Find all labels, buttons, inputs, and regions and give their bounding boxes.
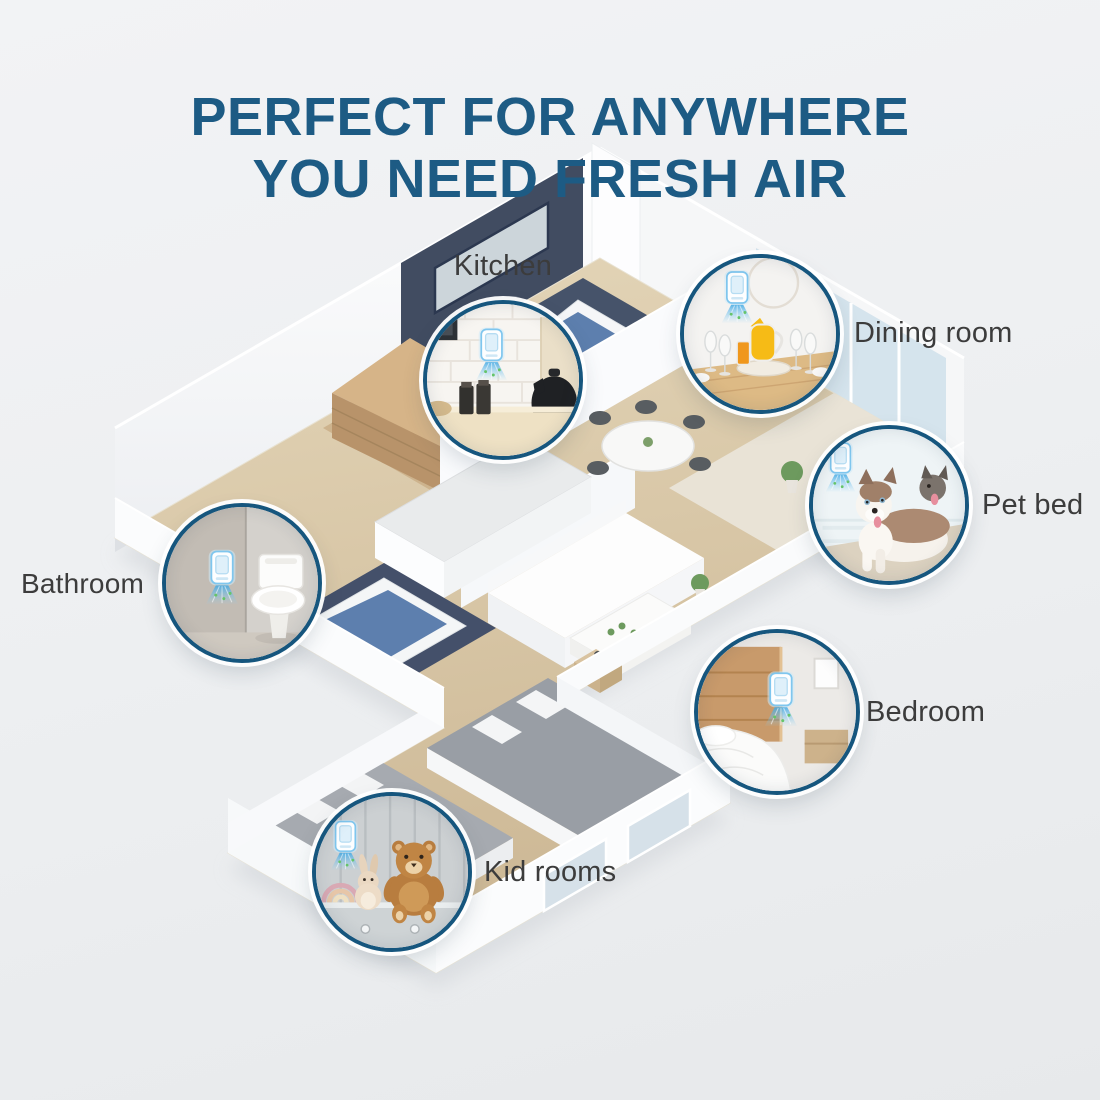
stage: PERFECT FOR ANYWHERE YOU NEED FRESH AIR [0, 0, 1100, 1100]
pet-bed-label: Pet bed [982, 489, 1083, 522]
air-purifier-device [722, 270, 753, 323]
bathroom-scene [166, 507, 318, 659]
bedroom-photo-circle [694, 629, 860, 795]
air-purifier-device [331, 820, 361, 870]
knob [361, 925, 370, 934]
page-title: PERFECT FOR ANYWHERE YOU NEED FRESH AIR [0, 86, 1100, 210]
jar [476, 384, 490, 414]
kid-rooms-photo-circle [312, 792, 472, 952]
dining-room-scene [684, 258, 836, 410]
knob [411, 925, 420, 934]
air-purifier-device [206, 550, 238, 604]
pet-bed-scene [813, 429, 965, 581]
jar [459, 386, 473, 415]
juice-glass [737, 342, 749, 365]
title-line-1: PERFECT FOR ANYWHERE [0, 86, 1100, 148]
picture-frame [815, 659, 839, 689]
dining-room-label: Dining room [854, 317, 1013, 350]
pet-bed-photo-circle [809, 425, 969, 585]
cup [812, 367, 829, 377]
bathroom-photo-circle [162, 503, 322, 663]
kitchen-label: Kitchen [403, 250, 603, 283]
bathroom-label: Bathroom [12, 568, 144, 600]
bedroom-scene [698, 633, 856, 791]
pillow [698, 726, 736, 746]
kitchen-photo-circle [423, 300, 583, 460]
air-purifier-device [765, 671, 797, 726]
dining-room-photo-circle [680, 254, 840, 414]
air-purifier-device [826, 442, 856, 492]
air-purifier-device [476, 328, 507, 381]
nightstand [805, 730, 848, 764]
kid-rooms-scene [316, 796, 468, 948]
title-line-2: YOU NEED FRESH AIR [0, 148, 1100, 210]
cup [693, 373, 710, 383]
kitchen-scene [427, 304, 579, 456]
kid-rooms-label: Kid rooms [484, 856, 616, 889]
bedroom-label: Bedroom [866, 696, 985, 729]
